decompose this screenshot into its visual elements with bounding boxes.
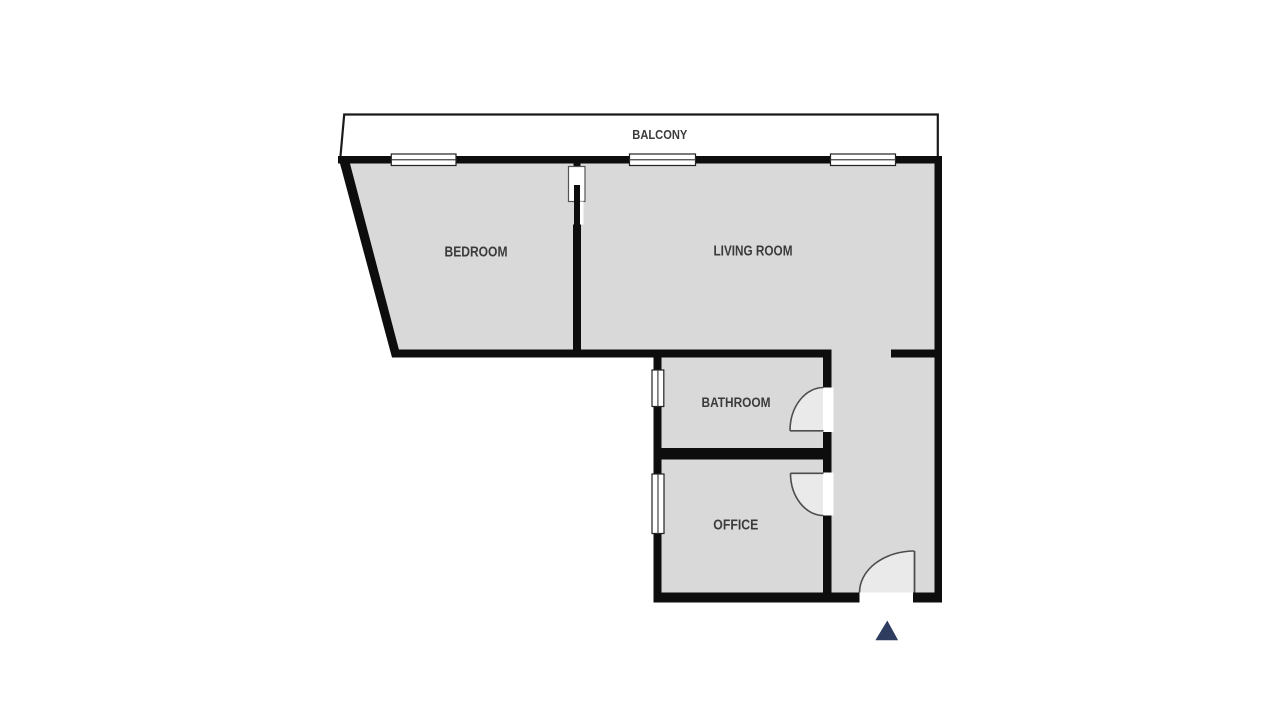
svg-text:LIVING ROOM: LIVING ROOM [714,244,793,260]
svg-text:BALCONY: BALCONY [632,128,688,142]
svg-text:BEDROOM: BEDROOM [445,243,508,260]
svg-text:OFFICE: OFFICE [713,517,758,533]
svg-text:BATHROOM: BATHROOM [702,395,771,411]
